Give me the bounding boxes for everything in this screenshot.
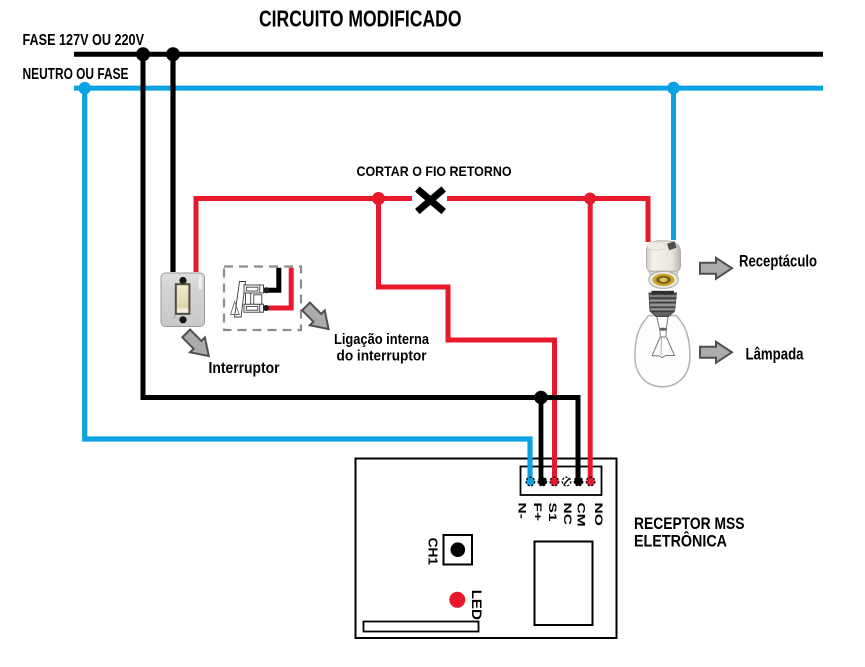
- svg-text:NC: NC: [562, 503, 574, 526]
- svg-text:CIRCUITO MODIFICADO: CIRCUITO MODIFICADO: [259, 6, 462, 32]
- svg-text:LED: LED: [468, 590, 483, 620]
- svg-text:NO: NO: [592, 503, 604, 526]
- svg-text:CM: CM: [575, 503, 587, 527]
- svg-text:RECEPTOR MSS: RECEPTOR MSS: [634, 514, 745, 533]
- svg-text:Lâmpada: Lâmpada: [746, 346, 805, 364]
- svg-text:ELETRÔNICA: ELETRÔNICA: [634, 532, 727, 551]
- svg-text:N-: N-: [516, 503, 528, 519]
- svg-text:Interruptor: Interruptor: [209, 360, 280, 377]
- svg-text:Receptáculo: Receptáculo: [739, 252, 817, 270]
- svg-text:CH1: CH1: [426, 538, 440, 565]
- svg-text:Ligação interna: Ligação interna: [334, 332, 430, 348]
- svg-text:NEUTRO OU FASE: NEUTRO OU FASE: [23, 66, 129, 83]
- svg-text:FASE 127V OU 220V: FASE 127V OU 220V: [23, 32, 145, 49]
- svg-text:F+: F+: [531, 503, 543, 522]
- svg-text:CORTAR O FIO RETORNO: CORTAR O FIO RETORNO: [357, 164, 512, 179]
- svg-text:do interruptor: do interruptor: [337, 349, 427, 365]
- svg-text:S1: S1: [547, 503, 559, 523]
